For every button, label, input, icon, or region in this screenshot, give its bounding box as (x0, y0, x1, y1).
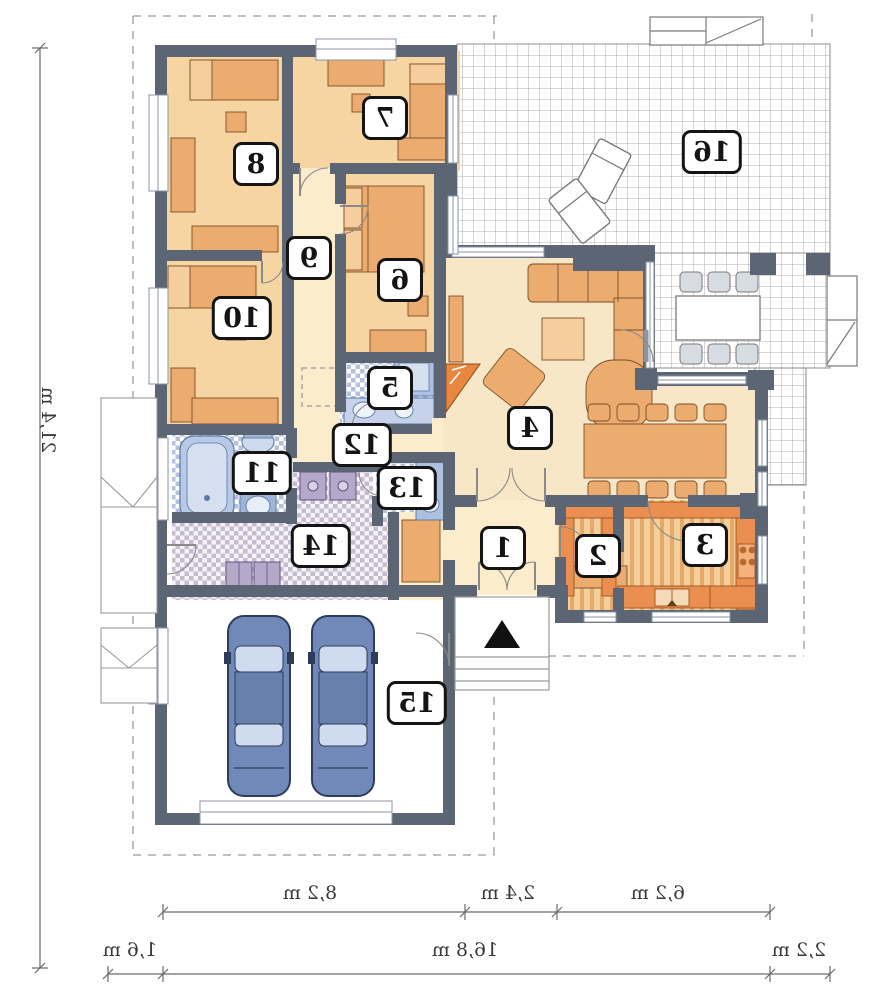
side-canopy (101, 398, 157, 703)
room-badge-1: 1 (480, 526, 526, 570)
entrance-porch (455, 597, 549, 690)
room-badge-8: 8 (233, 142, 279, 186)
terrace-steps-right (827, 276, 857, 366)
dim-label-6-2: 6,2 m (631, 882, 685, 904)
dim-label-2-4: 2,4 m (481, 882, 535, 904)
room-badge-6: 6 (377, 258, 423, 302)
room-badge-7: 7 (362, 96, 408, 140)
dim-label-8-2: 8,2 m (283, 882, 337, 904)
dim-label-16-8: 16,8 m (432, 939, 498, 961)
room-badge-4: 4 (507, 406, 553, 450)
room-badge-14: 14 (291, 524, 351, 568)
floor-plan-drawing (0, 0, 874, 1000)
room-badge-11: 11 (232, 451, 292, 495)
cars (224, 616, 378, 796)
room-badge-15: 15 (387, 681, 447, 725)
floor-plan-page: 1 2 3 4 5 6 7 8 9 10 11 12 13 14 15 16 2… (0, 0, 874, 1000)
room-badge-5: 5 (367, 366, 413, 410)
room-badge-16: 16 (682, 130, 742, 174)
room-badge-2: 2 (575, 534, 621, 578)
dim-label-2-2: 2,2 m (772, 939, 826, 961)
dim-label-vertical: 21,4 m (37, 387, 59, 453)
terrace-steps-top (650, 17, 763, 45)
room-badge-13: 13 (377, 466, 437, 510)
dim-label-1-6: 1,6 m (103, 939, 157, 961)
garage-door (200, 801, 392, 824)
room-badge-10: 10 (212, 296, 272, 340)
room-badge-3: 3 (682, 523, 728, 567)
room-badge-9: 9 (286, 236, 332, 280)
room-badge-12: 12 (332, 423, 392, 467)
